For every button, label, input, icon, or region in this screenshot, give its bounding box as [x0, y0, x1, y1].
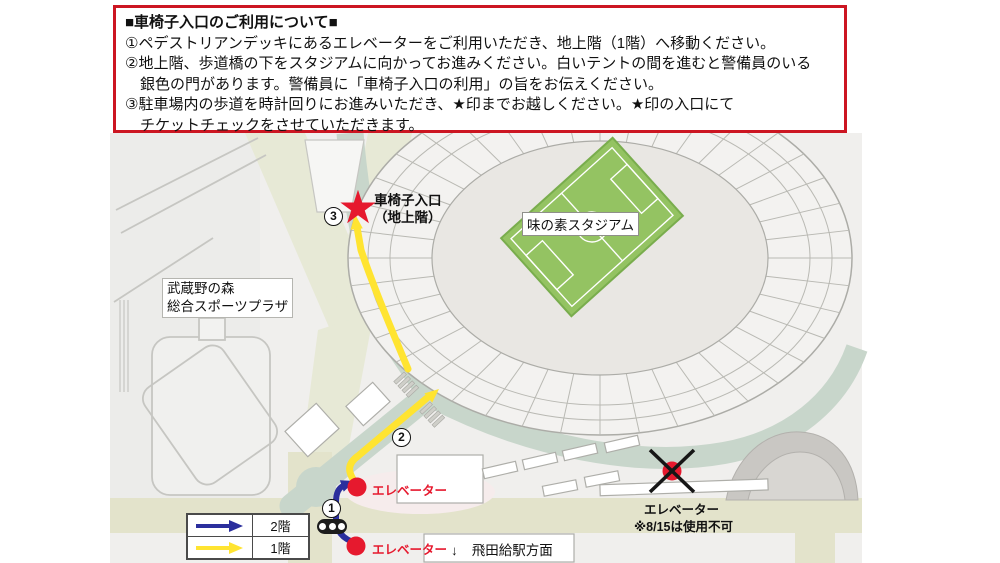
floor2-arrow-icon	[188, 515, 253, 536]
elevator-closed-note: ※8/15は使用不可	[634, 516, 733, 535]
route-marker-1: 1	[322, 499, 341, 518]
plaza-label: 武蔵野の森 総合スポーツプラザ	[162, 278, 293, 318]
elevator-upper-label: エレベーター	[372, 480, 447, 499]
down-arrow-icon: ↓	[451, 543, 458, 558]
screenshot-root: ■車椅子入口のご利用について■ ①ペデストリアンデッキにあるエレベーターをご利用…	[0, 0, 1000, 563]
notice-box: ■車椅子入口のご利用について■ ①ペデストリアンデッキにあるエレベーターをご利用…	[113, 5, 847, 133]
station-direction: ↓飛田給駅方面	[451, 539, 553, 559]
wheelchair-entrance-star-icon: ★	[337, 184, 378, 230]
route-marker-3: 3	[324, 207, 343, 226]
notice-line: ①ペデストリアンデッキにあるエレベーターをご利用いただき、地上階（1階）へ移動く…	[125, 34, 835, 55]
floor1-label: 1階	[253, 537, 308, 558]
traffic-light-icon	[317, 519, 347, 534]
entrance-label-line2: （地上階）	[374, 209, 442, 226]
legend-row-floor1: 1階	[188, 536, 308, 558]
notice-title: ■車椅子入口のご利用について■	[125, 13, 835, 34]
floor2-label: 2階	[253, 515, 308, 536]
route-legend: 2階 1階	[186, 513, 310, 560]
notice-line: ②地上階、歩道橋の下をスタジアムに向かってお進みください。白いテントの間を進むと…	[125, 54, 835, 75]
legend-row-floor2: 2階	[188, 515, 308, 536]
notice-line: ③駐車場内の歩道を時計回りにお進みいただき、★印までお越しください。★印の入口に…	[125, 95, 835, 116]
floor1-arrow-icon	[188, 537, 253, 558]
notice-line: チケットチェックをさせていただきます。	[125, 116, 835, 137]
plaza-label-line2: 総合スポーツプラザ	[167, 298, 288, 316]
entrance-label-line1: 車椅子入口	[374, 192, 442, 209]
elevator-lower-label: エレベーター	[372, 539, 447, 558]
plaza-label-line1: 武蔵野の森	[167, 280, 288, 298]
notice-line: 銀色の門があります。警備員に「車椅子入口の利用」の旨をお伝えください。	[125, 75, 835, 96]
stadium-label: 味の素スタジアム	[522, 212, 639, 236]
wheelchair-entrance-label: 車椅子入口 （地上階）	[374, 192, 442, 226]
route-marker-2: 2	[392, 428, 411, 447]
station-direction-label: 飛田給駅方面	[472, 543, 553, 558]
